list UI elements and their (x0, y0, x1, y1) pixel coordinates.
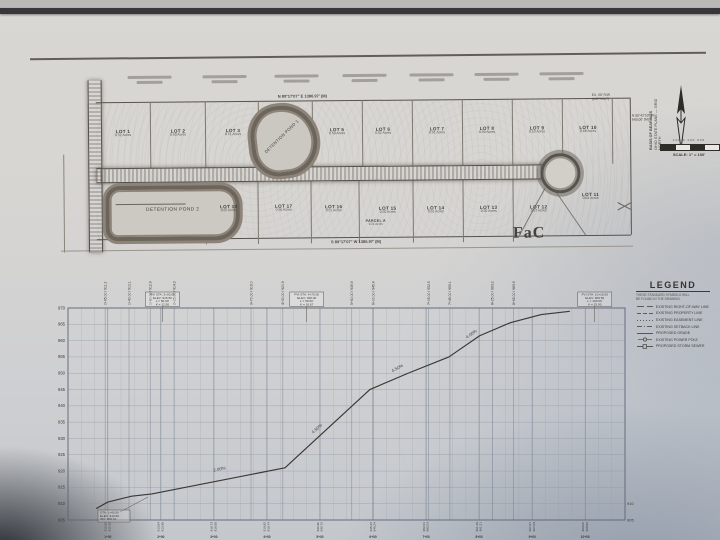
svg-text:915: 915 (58, 485, 66, 490)
lot-label: LOT 180.55 Acres (207, 204, 251, 214)
pond2-waterline (116, 204, 186, 206)
svg-text:952.03: 952.03 (426, 522, 430, 532)
plan-line (63, 155, 65, 253)
svg-text:955: 955 (58, 354, 66, 359)
svg-text:967.09: 967.09 (532, 522, 536, 532)
legend-item-label: PROPOSED GRADE (656, 331, 690, 335)
lot-label: LOT 80.50 Acres (465, 126, 509, 136)
svg-text:8+25.00 / 963.2: 8+25.00 / 963.2 (491, 281, 495, 305)
svg-text:913.36: 913.36 (160, 522, 164, 532)
right-of-way-note: EX. 60' R/W (ASPHALT) (592, 93, 610, 102)
svg-text:930: 930 (58, 436, 66, 441)
legend-item-label: EXISTING SETBACK LINE (656, 325, 700, 329)
adjoiner-ref-strip (419, 78, 445, 81)
lot-label: LOT 130.50 Acres (467, 205, 511, 215)
svg-text:968.82: 968.82 (585, 522, 589, 532)
lot-label: LOT 100.68 Acres (566, 125, 610, 135)
svg-text:4.50%: 4.50% (391, 363, 404, 373)
legend-subtitle: THESE STANDARD SYMBOLS WILL BE FOUND IN … (636, 293, 710, 301)
svg-text:3+70.00 / 919.0: 3+70.00 / 919.0 (249, 281, 253, 305)
lot-label: LOT 30.51 Acres (211, 128, 255, 138)
adjoiner-ref-strip (212, 80, 238, 83)
svg-text:945.24: 945.24 (373, 522, 377, 532)
scale-bar (660, 144, 720, 151)
svg-text:3+00: 3+00 (210, 535, 217, 539)
adjoiner-ref-strip (484, 78, 510, 81)
lot-label: LOT 140.52 Acres (414, 205, 458, 215)
lot-label: LOT 70.51 Acres (415, 126, 459, 136)
scale-bar-ticks: 100 0 100 200 (658, 138, 720, 142)
svg-text:4+00: 4+00 (263, 535, 270, 539)
svg-text:1+40.00 / 912.1: 1+40.00 / 912.1 (127, 281, 131, 305)
svg-text:930.72: 930.72 (320, 522, 324, 532)
lot-label: LOT 150.50 Acres (366, 206, 410, 216)
legend-item-label: EXISTING EASEMENT LINE (656, 318, 702, 322)
svg-text:905: 905 (58, 517, 66, 522)
svg-text:961.21: 961.21 (479, 522, 483, 532)
west-road (88, 80, 104, 252)
svg-text:K = 16.67: K = 16.67 (300, 303, 314, 307)
svg-text:9+00: 9+00 (529, 535, 536, 539)
svg-text:965: 965 (58, 322, 66, 327)
adjoiner-name-strip (410, 73, 454, 76)
legend-item-label: EXISTING RIGHT-OF-WAY LINE (656, 305, 709, 309)
svg-text:INV: 909.10: INV: 909.10 (100, 517, 117, 521)
lot-label: LOT 110.64 Acres (569, 192, 613, 202)
adjoiner-name-strip (540, 72, 584, 75)
legend-title: LEGEND (636, 280, 710, 292)
lot-label: LOT 170.50 Acres (262, 203, 306, 213)
legend-item: PROPOSED GRADE (636, 331, 710, 336)
legend-item: EXISTING EASEMENT LINE (636, 318, 710, 323)
legend-box: LEGEND THESE STANDARD SYMBOLS WILL BE FO… (636, 280, 710, 350)
svg-text:910: 910 (627, 501, 634, 506)
lot-label: LOT 10.52 Acres (101, 129, 145, 139)
svg-text:1+00: 1+00 (104, 535, 111, 539)
pond1-label: DETENTION POND 1 (255, 110, 308, 163)
legend-item-label: EXISTING POWER POLE (656, 338, 698, 342)
svg-text:7+05.00 / 952.5: 7+05.00 / 952.5 (427, 281, 431, 305)
svg-text:5+60.00 / 939.9: 5+60.00 / 939.9 (350, 281, 354, 305)
svg-text:7+45.00 / 955.1: 7+45.00 / 955.1 (448, 281, 452, 305)
adjoiner-name-strip (475, 73, 519, 76)
lot-label: LOT 60.52 Acres (361, 127, 405, 137)
scale-label: SCALE: 1" = 100' (655, 152, 720, 157)
svg-text:920: 920 (58, 468, 66, 473)
lot-label: LOT 50.50 Acres (315, 127, 359, 137)
svg-text:6+00.00 / 945.4: 6+00.00 / 945.4 (371, 281, 375, 305)
svg-text:K = 12.50: K = 12.50 (156, 303, 170, 307)
svg-text:950: 950 (58, 371, 66, 376)
site-plan-view: DETENTION POND 1 DETENTION POND 2 LOT 10… (0, 0, 720, 263)
bearing-bottom: S 89°17'07" W 1385.97' (M) (331, 239, 381, 244)
bearing-top: N 89°17'07" E 1386.97' (M) (278, 93, 327, 98)
adjoiner-ref-strip (352, 79, 378, 82)
cul-de-sac (540, 153, 580, 193)
road-profile-chart: 9059109159209259309359409459509559609659… (44, 248, 644, 540)
svg-text:2+00: 2+00 (157, 535, 164, 539)
lot-label: LOT 160.51 Acres (312, 204, 356, 214)
adjoiner-ref-strip (284, 79, 310, 82)
svg-text:960: 960 (58, 338, 66, 343)
legend-item: EXISTING SETBACK LINE (636, 324, 710, 329)
svg-text:0+95.00 / 911.2: 0+95.00 / 911.2 (103, 281, 107, 305)
lot-label: LOT 90.53 Acres (515, 125, 559, 135)
svg-text:8+65.00 / 965.9: 8+65.00 / 965.9 (512, 281, 516, 305)
svg-text:8+00: 8+00 (476, 535, 483, 539)
svg-text:10+00: 10+00 (581, 535, 590, 539)
adjoiner-ref-strip (137, 81, 163, 84)
svg-text:5+00: 5+00 (316, 535, 323, 539)
lot-label: LOT 20.50 Acres (156, 128, 200, 138)
svg-text:935: 935 (58, 419, 66, 424)
legend-item: EXISTING RIGHT-OF-WAY LINE (636, 304, 710, 309)
adjoiner-name-strip (343, 74, 387, 77)
parcel-label: PARCEL A 0.21 Acres (354, 219, 398, 227)
legend-item: EXISTING PROPERTY LINE (636, 311, 710, 316)
legend-item-label: PROPOSED STORM SEWER (656, 344, 704, 348)
adjoiner-name-strip (275, 74, 319, 77)
legend-item: EXISTING POWER POLE (636, 337, 710, 342)
svg-text:925: 925 (58, 452, 66, 457)
adjoiner-name-strip (128, 76, 172, 79)
lot-label: LOT 120.57 Acres (517, 204, 561, 214)
soil-unit-label: FaC (513, 224, 545, 242)
svg-text:940: 940 (58, 403, 66, 408)
svg-text:K = 25.00: K = 25.00 (588, 303, 602, 307)
svg-text:2.00%: 2.00% (213, 465, 226, 472)
legend-item: PROPOSED STORM SEWER (636, 344, 710, 349)
svg-text:4+30.00 / 920.9: 4+30.00 / 920.9 (281, 281, 285, 305)
svg-text:970: 970 (58, 305, 66, 310)
svg-text:910: 910 (58, 501, 66, 506)
legend-items: EXISTING RIGHT-OF-WAY LINE EXISTING PROP… (636, 304, 710, 349)
svg-text:905: 905 (627, 517, 634, 522)
svg-text:4.50%: 4.50% (311, 423, 324, 435)
adjoiner-ref-strip (549, 77, 575, 80)
svg-text:7+00: 7+00 (422, 535, 429, 539)
svg-text:945: 945 (58, 387, 66, 392)
svg-text:6+00: 6+00 (369, 535, 376, 539)
svg-text:919.74: 919.74 (267, 522, 271, 532)
svg-text:916.55: 916.55 (213, 522, 217, 532)
adjoiner-name-strip (203, 75, 247, 78)
svg-text:910.32: 910.32 (107, 522, 111, 532)
legend-item-label: EXISTING PROPERTY LINE (656, 311, 702, 315)
